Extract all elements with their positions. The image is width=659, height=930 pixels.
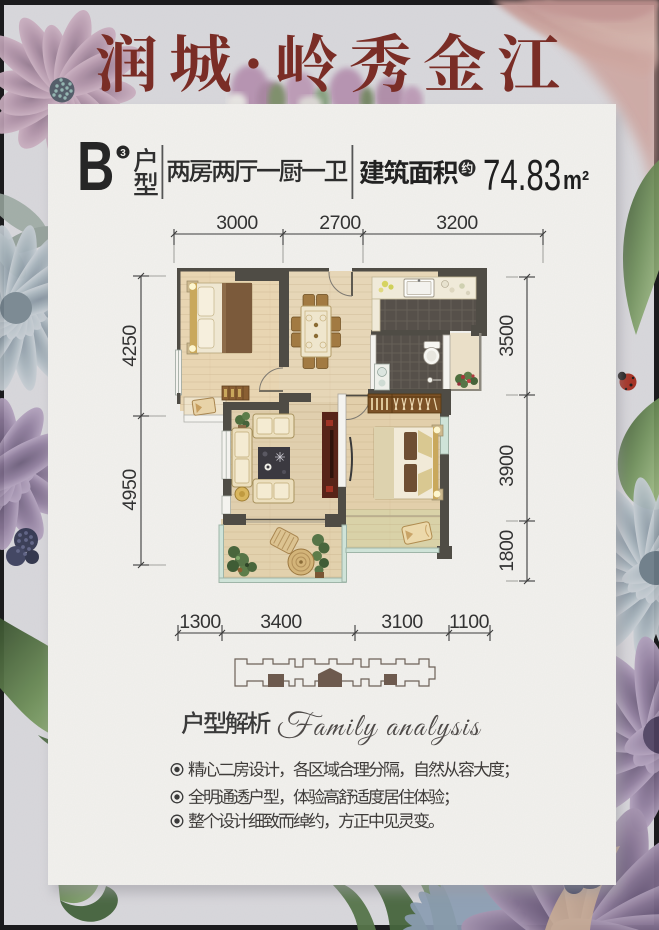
svg-text:3900: 3900 [496, 445, 518, 487]
svg-text:B: B [77, 127, 114, 205]
svg-text:1800: 1800 [496, 530, 518, 572]
svg-text:4250: 4250 [119, 325, 141, 367]
svg-text:3400: 3400 [260, 611, 302, 633]
svg-text:3000: 3000 [216, 212, 258, 234]
svg-text:2700: 2700 [319, 212, 361, 234]
svg-text:1300: 1300 [179, 611, 221, 633]
svg-text:3200: 3200 [436, 212, 478, 234]
svg-text:3500: 3500 [496, 315, 518, 357]
svg-text:4950: 4950 [119, 469, 141, 511]
svg-text:1100: 1100 [449, 611, 490, 633]
svg-text:3: 3 [120, 148, 126, 159]
svg-text:74.83: 74.83 [483, 151, 561, 201]
svg-text:m²: m² [563, 166, 589, 196]
svg-text:3100: 3100 [381, 611, 423, 633]
